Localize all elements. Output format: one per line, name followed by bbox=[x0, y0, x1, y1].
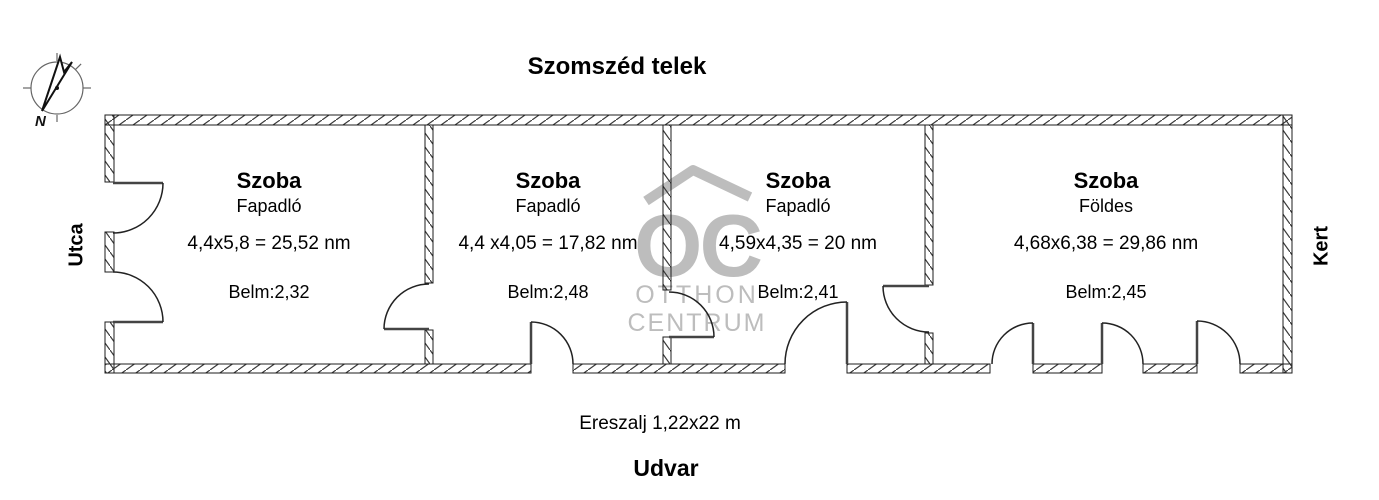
room-2-label: Szoba Fapadló 4,4 x4,05 = 17,82 nm Belm:… bbox=[458, 168, 637, 303]
watermark-text-line2: CENTRUM bbox=[628, 309, 767, 337]
wall-room3-room4-segment bbox=[925, 125, 933, 285]
room-name: Szoba bbox=[719, 168, 877, 194]
door-room1-left-upper bbox=[113, 183, 163, 233]
room-name: Szoba bbox=[1014, 168, 1198, 194]
door-room4-bottom-3 bbox=[1197, 321, 1240, 364]
compass: N bbox=[23, 53, 91, 130]
room-ceiling-height: Belm:2,32 bbox=[187, 282, 350, 303]
room-4-label: Szoba Földes 4,68x6,38 = 29,86 nm Belm:2… bbox=[1014, 168, 1198, 303]
wall-room2-room3-segment bbox=[663, 337, 671, 364]
door-room2-bottom bbox=[531, 322, 573, 364]
door-room4-bottom-1 bbox=[992, 323, 1033, 364]
wall-room3-room4-segment bbox=[925, 333, 933, 364]
room-3-label: Szoba Fapadló 4,59x4,35 = 20 nm Belm:2,4… bbox=[719, 168, 877, 303]
room-1-label: Szoba Fapadló 4,4x5,8 = 25,52 nm Belm:2,… bbox=[187, 168, 350, 303]
yard-label: Udvar bbox=[633, 455, 698, 482]
wall-bottom-segment bbox=[1240, 364, 1292, 373]
compass-center-dot bbox=[55, 86, 59, 90]
compass-needle-icon bbox=[42, 57, 72, 111]
door-room3-bottom bbox=[785, 302, 847, 364]
compass-north-label: N bbox=[35, 113, 47, 130]
wall-bottom-segment bbox=[1033, 364, 1102, 373]
door-room4-bottom-2 bbox=[1102, 323, 1143, 364]
wall-bottom-segment bbox=[847, 364, 990, 373]
neighbor-plot-label: Szomszéd telek bbox=[528, 53, 707, 81]
room-dimensions: 4,4x5,8 = 25,52 nm bbox=[187, 233, 350, 255]
door-room1-room2 bbox=[384, 284, 429, 329]
room-dimensions: 4,59x4,35 = 20 nm bbox=[719, 233, 877, 255]
wall-top bbox=[105, 115, 1292, 125]
room-name: Szoba bbox=[187, 168, 350, 194]
room-floor-type: Földes bbox=[1014, 196, 1198, 217]
room-ceiling-height: Belm:2,41 bbox=[719, 282, 877, 303]
room-floor-type: Fapadló bbox=[719, 196, 877, 217]
wall-bottom-segment bbox=[573, 364, 785, 373]
door-room1-left-lower bbox=[113, 272, 163, 322]
wall-bottom-segment bbox=[105, 364, 531, 373]
wall-room1-room2-segment bbox=[425, 125, 433, 283]
room-floor-type: Fapadló bbox=[458, 196, 637, 217]
room-floor-type: Fapadló bbox=[187, 196, 350, 217]
wall-room1-room2-segment bbox=[425, 330, 433, 364]
wall-right bbox=[1283, 115, 1292, 373]
room-name: Szoba bbox=[458, 168, 637, 194]
room-ceiling-height: Belm:2,45 bbox=[1014, 282, 1198, 303]
floorplan-page: OC OTTHON CENTRUM bbox=[0, 0, 1379, 500]
eaves-dimension-label: Ereszalj 1,22x22 m bbox=[579, 413, 741, 435]
garden-label: Kert bbox=[1311, 226, 1334, 266]
wall-left-segment bbox=[105, 115, 114, 182]
wall-bottom-segment bbox=[1143, 364, 1197, 373]
room-dimensions: 4,68x6,38 = 29,86 nm bbox=[1014, 233, 1198, 255]
room-ceiling-height: Belm:2,48 bbox=[458, 282, 637, 303]
street-label: Utca bbox=[66, 223, 89, 266]
door-room3-room4 bbox=[883, 286, 929, 332]
wall-left-segment bbox=[105, 232, 114, 272]
wall-room2-room3-segment bbox=[663, 125, 671, 290]
room-dimensions: 4,4 x4,05 = 17,82 nm bbox=[458, 233, 637, 255]
